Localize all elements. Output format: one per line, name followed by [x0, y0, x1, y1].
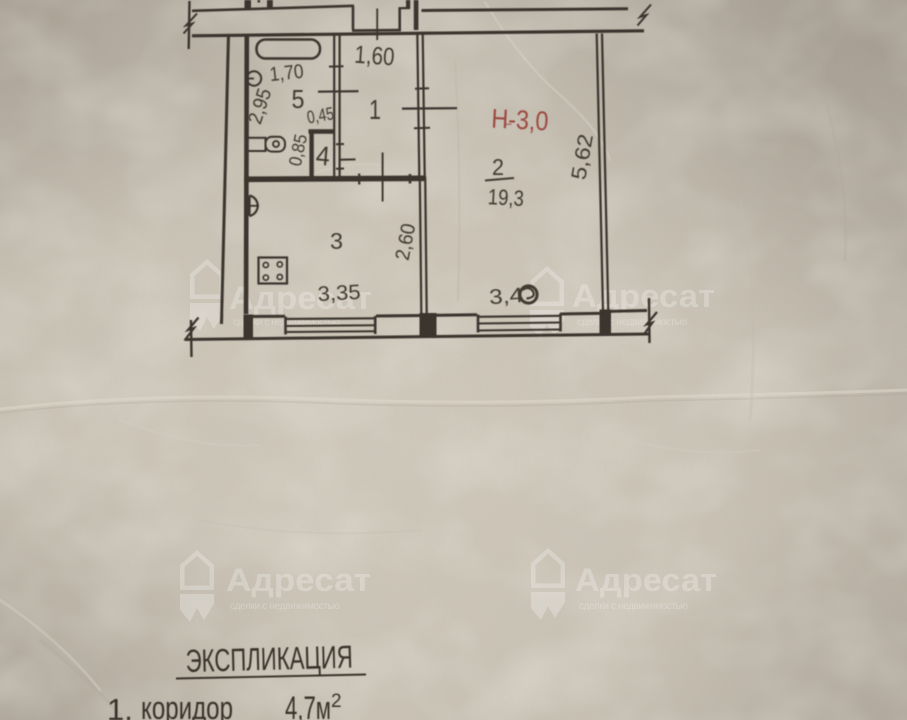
svg-text:Адресат: Адресат — [575, 562, 717, 598]
svg-text:2: 2 — [492, 154, 504, 180]
svg-text:Адресат: Адресат — [572, 278, 715, 314]
svg-text:1.: 1. — [107, 692, 133, 720]
svg-text:2: 2 — [331, 691, 342, 712]
svg-text:4: 4 — [315, 140, 332, 171]
svg-text:сделки с недвижимостью: сделки с недвижимостью — [577, 317, 688, 328]
svg-text:ЭКСПЛИКАЦИЯ: ЭКСПЛИКАЦИЯ — [185, 639, 353, 679]
svg-text:3: 3 — [330, 228, 343, 254]
svg-text:5: 5 — [292, 84, 305, 114]
svg-text:1: 1 — [369, 94, 381, 125]
svg-text:4,7м: 4,7м — [285, 690, 331, 720]
svg-text:сделки с недвижимостью: сделки с недвижимостью — [579, 601, 689, 612]
svg-text:19,3: 19,3 — [487, 184, 524, 211]
svg-text:Адресат: Адресат — [226, 562, 371, 598]
svg-text:1,70: 1,70 — [269, 61, 305, 86]
svg-text:сделки с недвижимостью: сделки с недвижимостью — [230, 601, 341, 612]
svg-text:3,35: 3,35 — [317, 281, 361, 306]
svg-text:Н-3,0: Н-3,0 — [491, 104, 549, 137]
svg-text:1,60: 1,60 — [354, 41, 396, 72]
svg-text:коридор: коридор — [141, 690, 233, 720]
